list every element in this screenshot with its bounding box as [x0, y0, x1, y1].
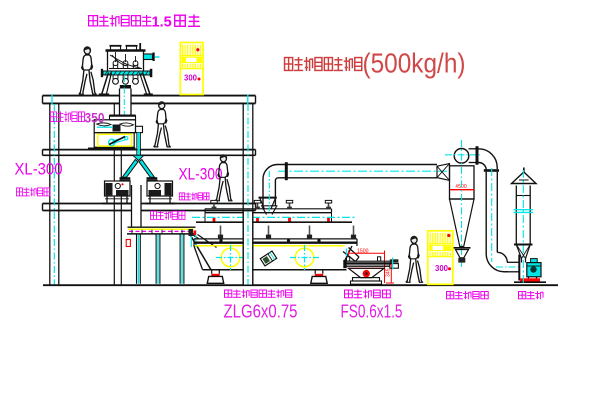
svg-text:345: 345 [386, 268, 392, 277]
svg-text:300: 300 [184, 73, 197, 83]
svg-text:350: 350 [85, 111, 105, 126]
svg-text:FS0.6x1.5: FS0.6x1.5 [341, 301, 403, 322]
svg-text:ZLG6x0.75: ZLG6x0.75 [224, 301, 298, 322]
svg-text:1500: 1500 [357, 248, 369, 254]
svg-text:XL-300: XL-300 [179, 165, 223, 184]
svg-text:1.5: 1.5 [152, 15, 172, 31]
svg-text:(500kg/h): (500kg/h) [363, 48, 466, 79]
svg-text:XL-300: XL-300 [15, 160, 63, 179]
svg-text:300: 300 [435, 263, 448, 273]
